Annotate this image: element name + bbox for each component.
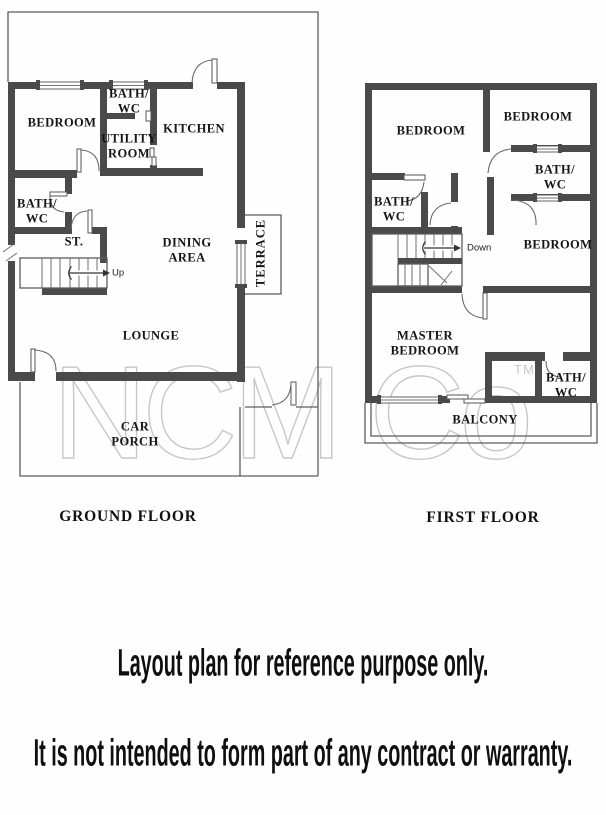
room-label-gf-lounge: LOUNGE — [123, 329, 180, 344]
room-label-gf-terrace: TERRACE — [254, 219, 269, 287]
room-label-gf-bath-wc-mid: BATH/ WC — [17, 196, 57, 226]
room-label-ff-bath-wc-left: BATH/ WC — [374, 194, 414, 224]
room-label-gf-car-porch: CAR PORCH — [111, 419, 158, 449]
ground-floor-title: GROUND FLOOR — [59, 508, 196, 526]
watermark-tm: TM — [514, 362, 535, 377]
room-label-gf-bedroom: BEDROOM — [28, 116, 97, 131]
floor-plan-sheet: NCM Co TM — [0, 0, 606, 815]
stair-label-up: Up — [112, 268, 124, 279]
first-floor-title: FIRST FLOOR — [426, 509, 539, 527]
room-label-ff-bedroom-mid-right: BEDROOM — [524, 238, 593, 253]
floor-plans-drawing: NCM Co TM — [0, 0, 606, 545]
room-label-ff-bedroom-top-right: BEDROOM — [504, 110, 573, 125]
disclaimer-line-2: It is not intended to form part of any c… — [34, 733, 573, 776]
gf-stairs — [3, 244, 110, 288]
stair-label-down: Down — [467, 243, 491, 254]
room-label-ff-bath-wc-right: BATH/ WC — [535, 162, 575, 192]
room-label-gf-dining-area: DINING AREA — [163, 235, 212, 265]
room-label-ff-master-bedroom: MASTER BEDROOM — [391, 328, 460, 358]
room-label-gf-utility-room: UTILITY ROOM — [101, 131, 157, 161]
room-label-ff-balcony: BALCONY — [452, 413, 517, 428]
room-label-ff-bedroom-top-left: BEDROOM — [397, 124, 466, 139]
room-label-ff-bath-wc-bottom: BATH/ WC — [546, 370, 586, 400]
ff-stairs — [372, 234, 462, 286]
room-label-gf-kitchen: KITCHEN — [163, 122, 225, 137]
disclaimer-line-1: Layout plan for reference purpose only. — [118, 643, 489, 686]
room-label-gf-store: ST. — [65, 235, 84, 250]
room-label-gf-bath-wc-top: BATH/ WC — [109, 86, 149, 116]
